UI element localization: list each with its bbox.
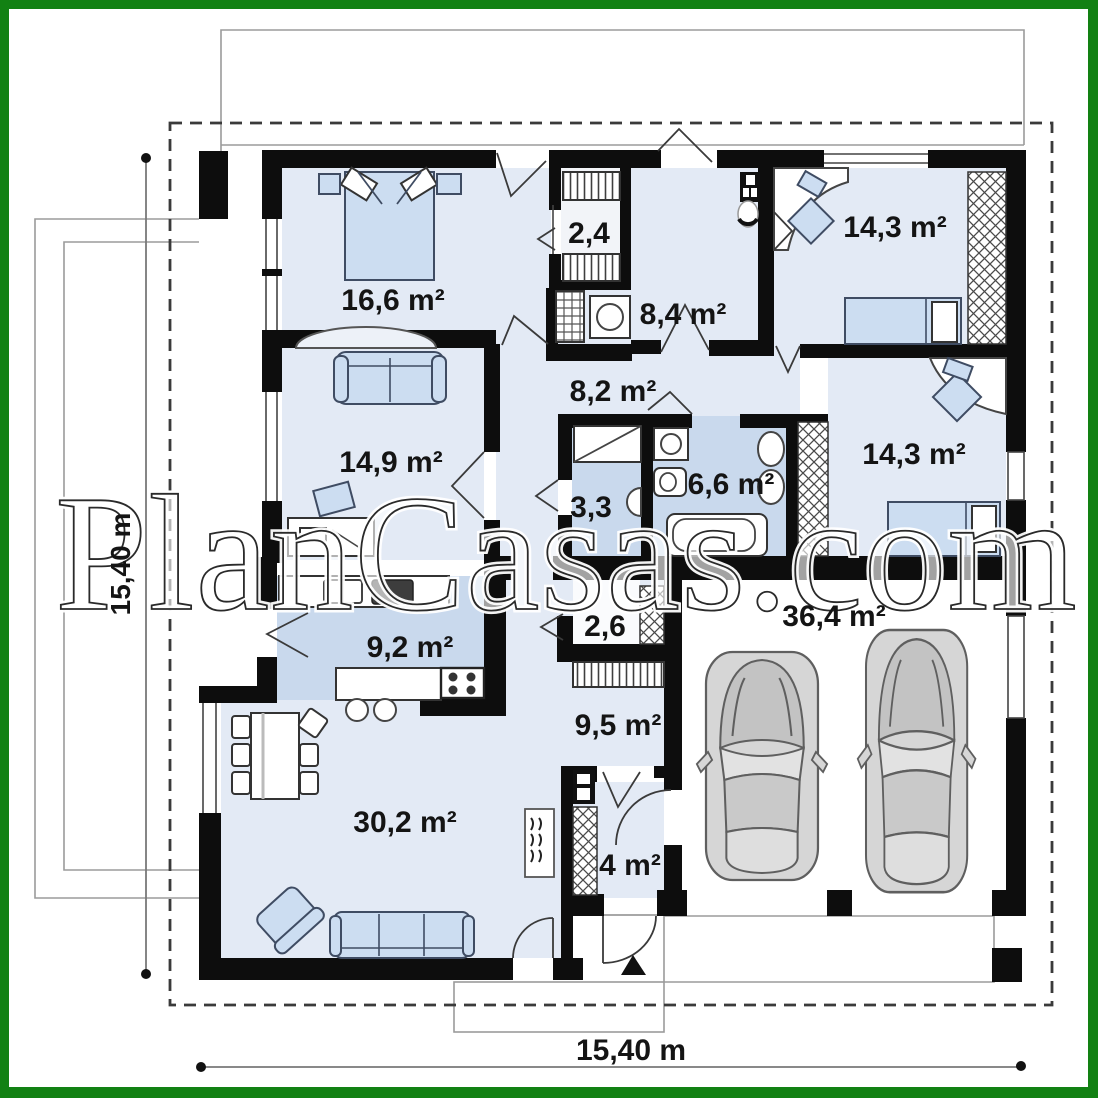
svg-text:PlanCasas.com: PlanCasas.com: [55, 461, 1078, 645]
svg-text:16,6 m²: 16,6 m²: [341, 284, 444, 317]
svg-text:14,3 m²: 14,3 m²: [843, 211, 946, 244]
svg-text:2,4: 2,4: [568, 217, 610, 250]
svg-text:9,2 m²: 9,2 m²: [367, 631, 454, 664]
svg-text:2,6: 2,6: [584, 610, 626, 643]
svg-text:14,9 m²: 14,9 m²: [339, 446, 442, 479]
svg-text:9,5 m²: 9,5 m²: [575, 709, 662, 742]
svg-text:14,3 m²: 14,3 m²: [862, 438, 965, 471]
svg-text:30,2 m²: 30,2 m²: [353, 806, 456, 839]
svg-text:4 m²: 4 m²: [599, 849, 661, 882]
svg-text:36,4 m²: 36,4 m²: [782, 600, 885, 633]
svg-text:8,2 m²: 8,2 m²: [570, 375, 657, 408]
svg-text:3,3: 3,3: [570, 491, 612, 524]
svg-text:8,4 m²: 8,4 m²: [640, 298, 727, 331]
svg-text:6,6 m²: 6,6 m²: [688, 468, 775, 501]
svg-text:15,40 m: 15,40 m: [576, 1034, 686, 1067]
svg-text:15,40 m: 15,40 m: [105, 513, 136, 616]
